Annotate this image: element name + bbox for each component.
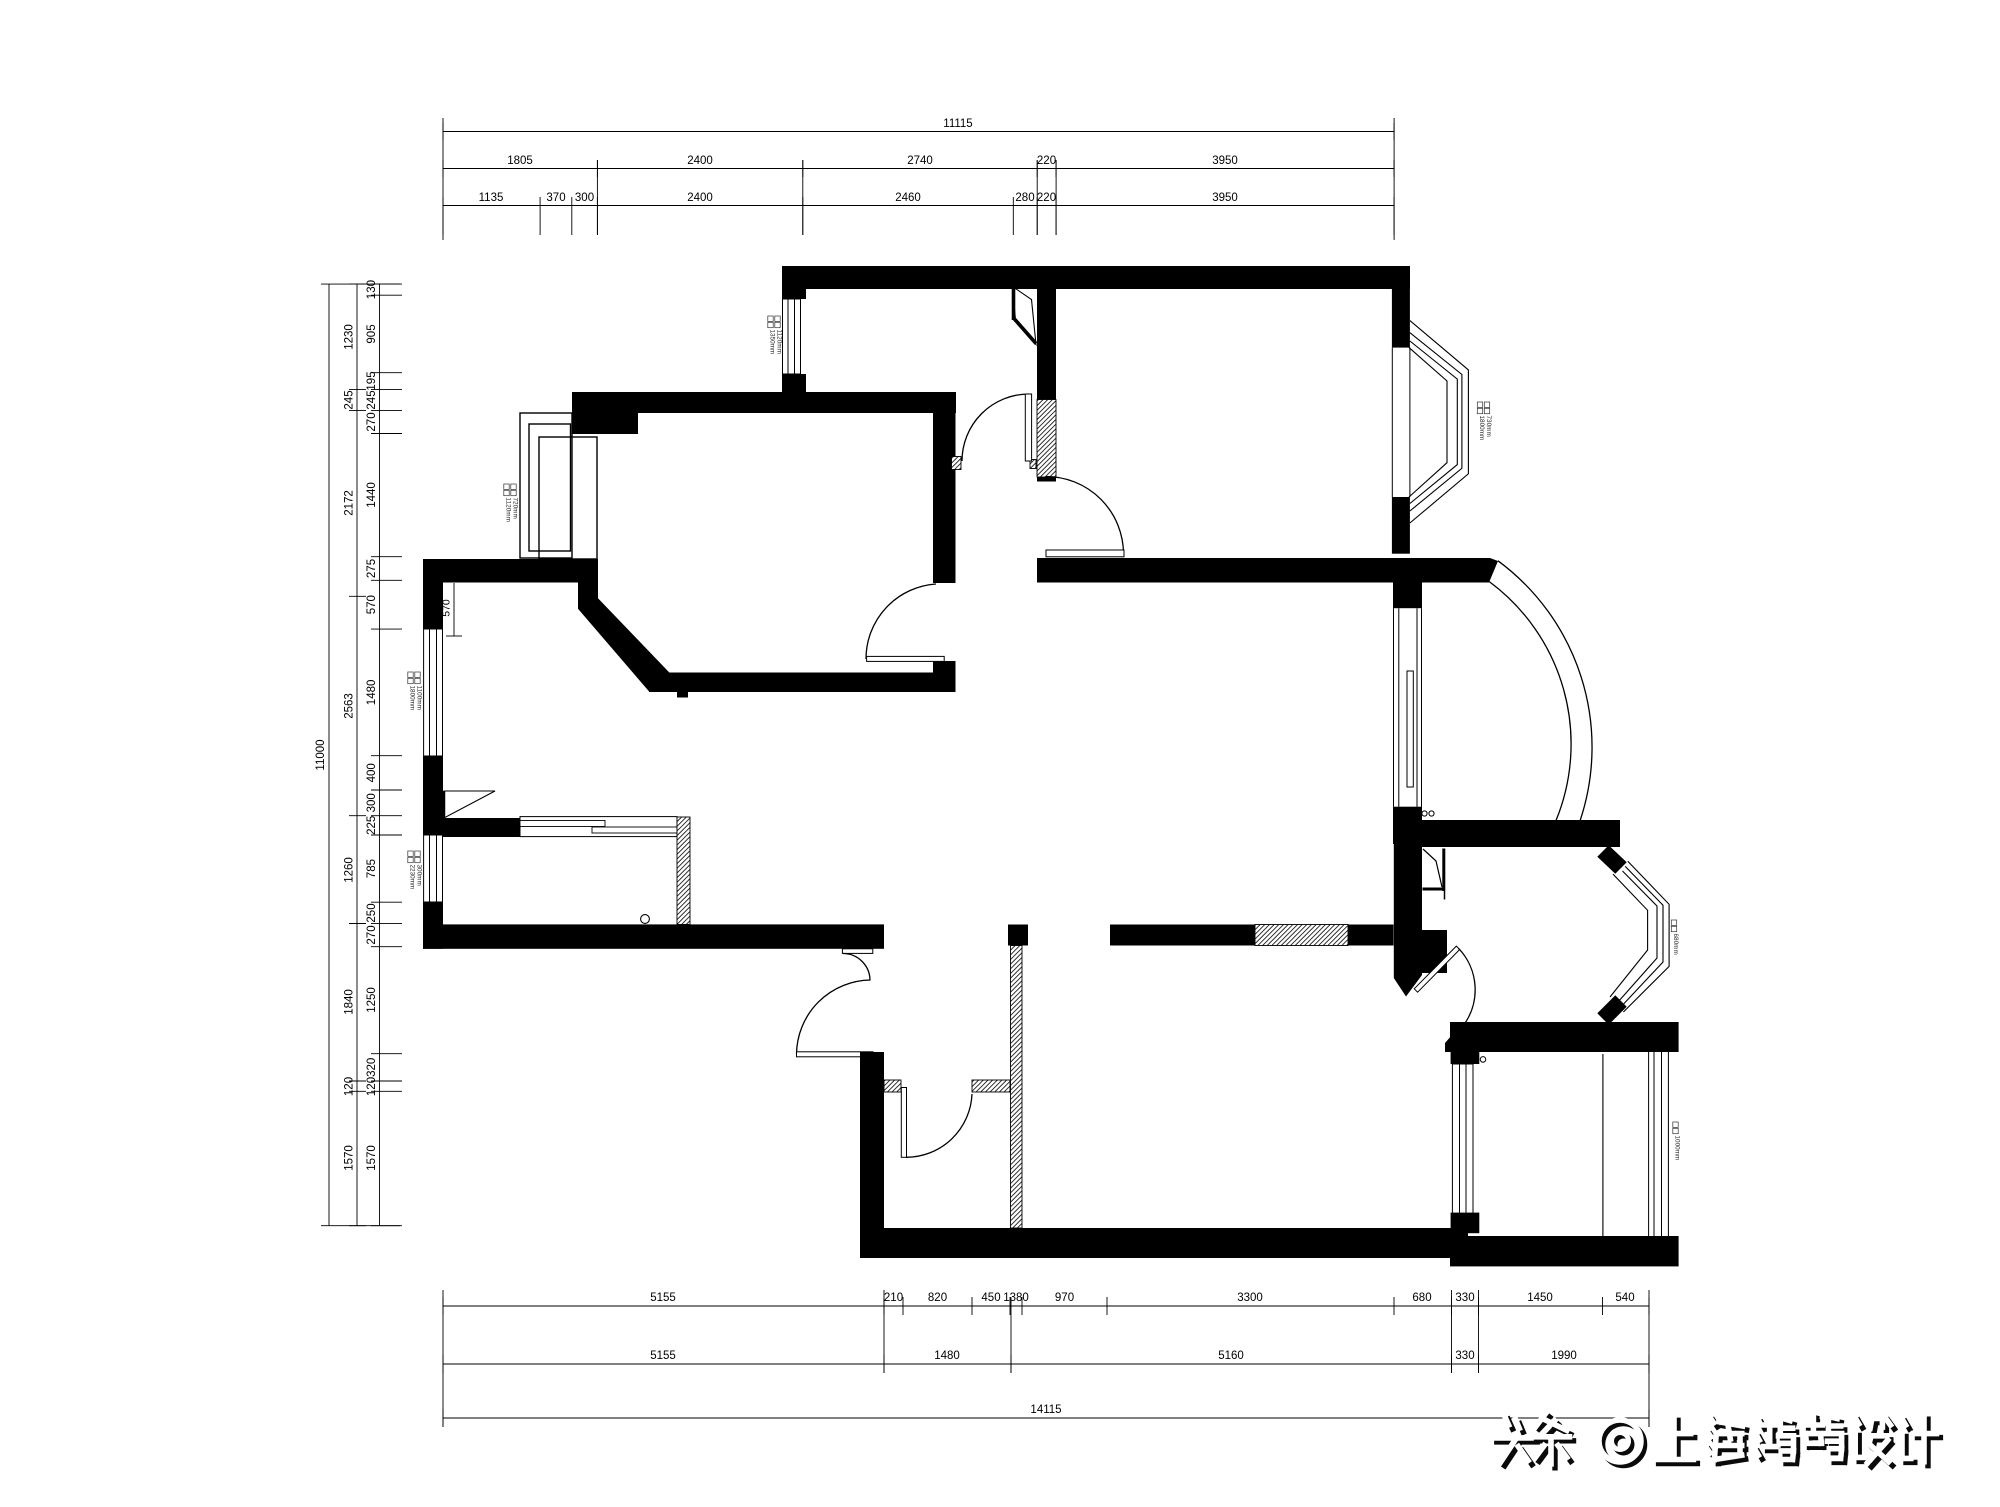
svg-text:300: 300 <box>366 793 378 812</box>
svg-text:1350mm: 1350mm <box>769 330 776 355</box>
svg-text:11115: 11115 <box>943 118 972 130</box>
svg-text:220: 220 <box>1037 192 1056 204</box>
svg-text:330: 330 <box>1455 1292 1474 1304</box>
svg-text:120: 120 <box>366 1077 378 1096</box>
svg-text:1100mm: 1100mm <box>416 686 423 710</box>
svg-text:225: 225 <box>366 816 378 835</box>
svg-text:1230: 1230 <box>344 324 356 350</box>
svg-text:730mm: 730mm <box>1485 416 1492 437</box>
svg-text:680mm: 680mm <box>1672 934 1679 955</box>
svg-text:330: 330 <box>1455 1350 1474 1362</box>
svg-text:195: 195 <box>366 371 378 390</box>
svg-text:1450: 1450 <box>1527 1292 1553 1304</box>
svg-text:1570: 1570 <box>366 1145 378 1171</box>
svg-text:3950: 3950 <box>1212 155 1238 167</box>
svg-text:1440: 1440 <box>366 482 378 508</box>
svg-text:1480: 1480 <box>366 680 378 706</box>
svg-text:720mm: 720mm <box>512 498 519 519</box>
svg-text:2740: 2740 <box>907 155 933 167</box>
svg-text:1800mm: 1800mm <box>409 686 416 711</box>
svg-text:3300: 3300 <box>1237 1292 1263 1304</box>
svg-text:250: 250 <box>366 903 378 922</box>
svg-text:220: 220 <box>1037 155 1056 167</box>
svg-text:820: 820 <box>928 1292 947 1304</box>
svg-text:400: 400 <box>366 763 378 782</box>
svg-text:210: 210 <box>884 1292 903 1304</box>
svg-text:270: 270 <box>366 412 378 431</box>
svg-text:570: 570 <box>366 595 378 614</box>
svg-text:275: 275 <box>366 559 378 578</box>
svg-text:2230mm: 2230mm <box>409 865 416 890</box>
svg-text:245: 245 <box>366 390 378 409</box>
svg-text:1120mm: 1120mm <box>505 498 512 522</box>
svg-text:970: 970 <box>1055 1292 1074 1304</box>
svg-text:370: 370 <box>546 192 565 204</box>
svg-text:3950: 3950 <box>1212 192 1238 204</box>
svg-text:540: 540 <box>1615 1292 1634 1304</box>
svg-text:11000: 11000 <box>315 739 327 770</box>
svg-text:2172: 2172 <box>344 490 356 516</box>
svg-text:905: 905 <box>366 324 378 343</box>
svg-text:2400: 2400 <box>687 192 713 204</box>
svg-text:1135: 1135 <box>479 192 504 204</box>
svg-text:1120mm: 1120mm <box>776 330 783 354</box>
svg-text:5155: 5155 <box>650 1350 676 1362</box>
svg-text:2563: 2563 <box>344 693 356 719</box>
svg-text:245: 245 <box>344 390 356 409</box>
svg-text:130: 130 <box>366 280 378 299</box>
svg-text:300: 300 <box>575 192 594 204</box>
svg-text:570: 570 <box>441 599 453 617</box>
svg-text:1380: 1380 <box>1003 1292 1029 1304</box>
svg-text:450: 450 <box>981 1292 1000 1304</box>
svg-text:1805: 1805 <box>507 155 533 167</box>
svg-text:5160: 5160 <box>1218 1350 1244 1362</box>
svg-text:1800mm: 1800mm <box>1478 416 1485 441</box>
svg-text:785: 785 <box>366 859 378 878</box>
svg-text:1250: 1250 <box>366 987 378 1013</box>
svg-text:280: 280 <box>1015 192 1034 204</box>
svg-text:1570: 1570 <box>344 1145 356 1171</box>
svg-text:2400: 2400 <box>687 155 713 167</box>
svg-text:1840: 1840 <box>344 989 356 1015</box>
svg-text:320: 320 <box>366 1058 378 1077</box>
svg-text:2460: 2460 <box>895 192 921 204</box>
svg-text:5155: 5155 <box>650 1292 676 1304</box>
svg-text:1480: 1480 <box>934 1350 960 1362</box>
svg-text:270: 270 <box>366 925 378 944</box>
svg-text:14115: 14115 <box>1030 1404 1061 1416</box>
svg-text:1260: 1260 <box>344 857 356 883</box>
svg-text:680: 680 <box>1412 1292 1431 1304</box>
svg-text:1990: 1990 <box>1551 1350 1577 1362</box>
svg-text:300mm: 300mm <box>416 865 423 886</box>
svg-text:1000mm: 1000mm <box>1674 1136 1681 1161</box>
svg-text:120: 120 <box>344 1077 356 1096</box>
